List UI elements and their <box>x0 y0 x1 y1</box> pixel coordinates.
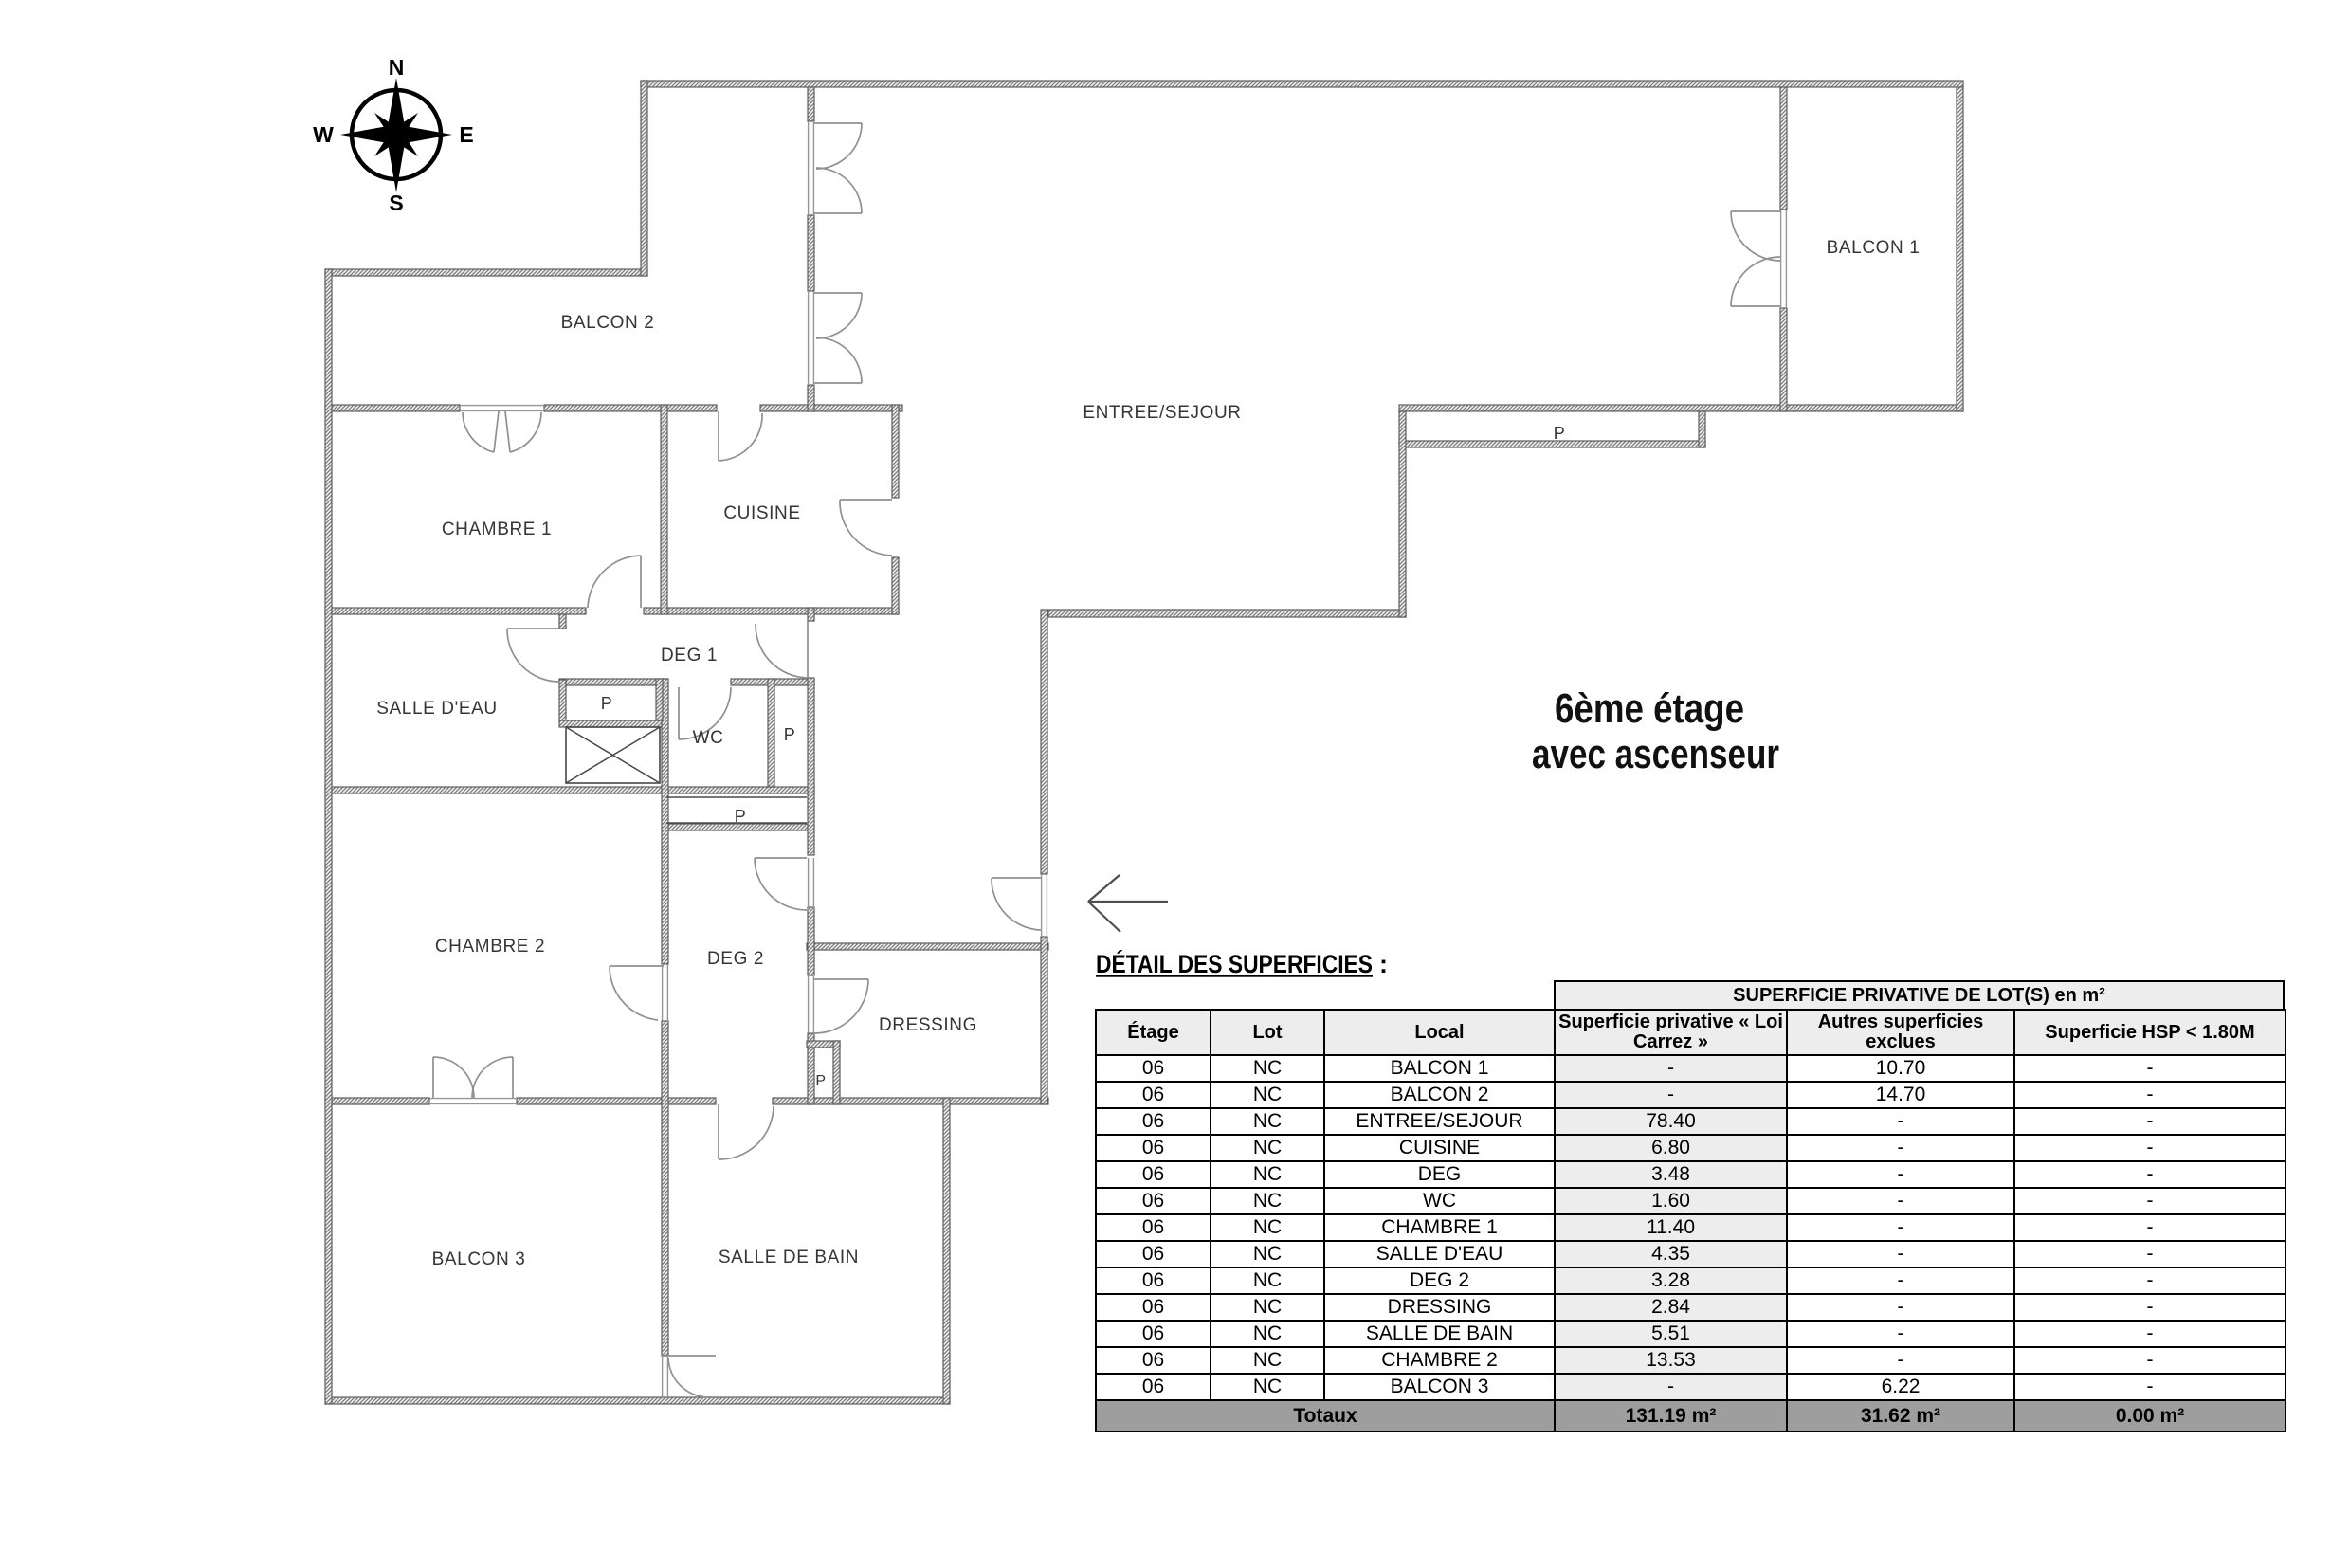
svg-text:S: S <box>389 191 403 215</box>
svg-text:6ème étage: 6ème étage <box>1555 685 1744 732</box>
svg-text:P: P <box>784 725 796 744</box>
svg-text:avec ascenseur: avec ascenseur <box>1532 731 1779 777</box>
svg-text:P: P <box>815 1073 826 1089</box>
svg-text:CUISINE: CUISINE <box>723 503 800 523</box>
svg-text:ENTREE/SEJOUR: ENTREE/SEJOUR <box>1083 403 1241 423</box>
svg-text:P: P <box>601 694 613 713</box>
svg-text:BALCON 3: BALCON 3 <box>432 1249 526 1269</box>
svg-text:SALLE DE BAIN: SALLE DE BAIN <box>719 1248 859 1267</box>
svg-text:DRESSING: DRESSING <box>879 1015 977 1035</box>
svg-text:CHAMBRE 2: CHAMBRE 2 <box>435 937 545 957</box>
svg-text:N: N <box>389 55 405 80</box>
svg-text:E: E <box>459 122 473 147</box>
svg-text:DÉTAIL DES SUPERFICIES: DÉTAIL DES SUPERFICIES <box>1096 949 1373 978</box>
svg-text::: : <box>1379 950 1388 978</box>
svg-text:DEG 2: DEG 2 <box>707 949 764 969</box>
svg-text:W: W <box>313 122 334 147</box>
svg-text:DEG 1: DEG 1 <box>661 646 718 665</box>
svg-text:SALLE D'EAU: SALLE D'EAU <box>376 699 497 719</box>
svg-text:P: P <box>735 807 747 826</box>
svg-text:WC: WC <box>693 728 724 748</box>
svg-text:CHAMBRE 1: CHAMBRE 1 <box>442 520 552 539</box>
svg-text:P: P <box>1554 424 1566 443</box>
svg-text:BALCON 1: BALCON 1 <box>1827 238 1921 258</box>
svg-text:BALCON 2: BALCON 2 <box>561 313 655 333</box>
